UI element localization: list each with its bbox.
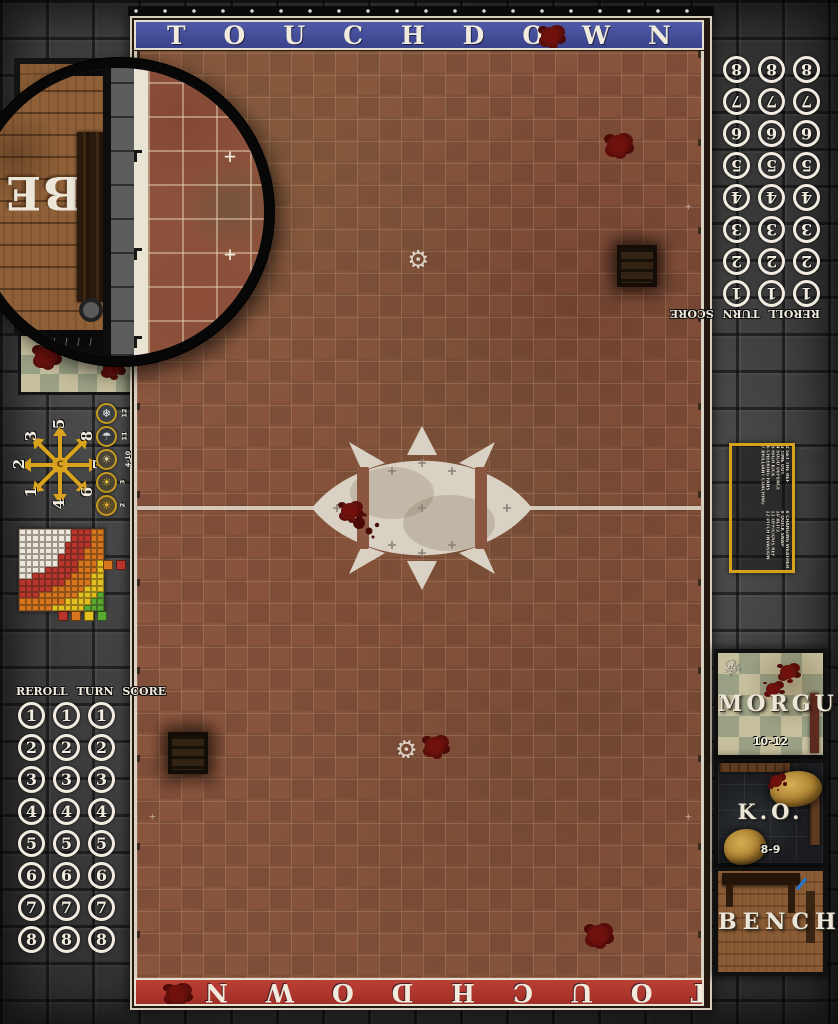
track-number-cell: 6 bbox=[723, 120, 750, 147]
track-number-cell: 5 bbox=[18, 830, 45, 857]
track-number-cell: 5 bbox=[88, 830, 115, 857]
rain-icon: ☂ bbox=[96, 426, 117, 447]
wood-plank bbox=[720, 763, 790, 772]
turn-track-header: REROLL TURN SCORE bbox=[16, 685, 126, 698]
track-row: 333 bbox=[716, 216, 820, 243]
ko-dugout: K.O. 8-9 bbox=[714, 759, 827, 867]
track-number-cell: 6 bbox=[53, 862, 80, 889]
kickoff-row: 12 PITCH INVASION bbox=[765, 511, 770, 571]
track-number-cell: 3 bbox=[723, 216, 750, 243]
track-number-cell: 4 bbox=[53, 798, 80, 825]
blood-splatter bbox=[587, 925, 609, 945]
track-row: 222 bbox=[716, 248, 820, 275]
endzone-top: TOUCHDOWN bbox=[134, 20, 704, 50]
turn-track-right: REROLL TURN SCORE 1112223334445556667778… bbox=[716, 56, 820, 320]
track-row: 222 bbox=[18, 734, 115, 761]
track-number-cell: 6 bbox=[18, 862, 45, 889]
pitch-cross-mark: + bbox=[149, 811, 156, 822]
kickoff-row: 2 GET THE REF bbox=[784, 446, 789, 506]
legend-swatch bbox=[97, 611, 107, 621]
endzone-bottom: TOUCHDOWN bbox=[134, 978, 704, 1006]
track-number-cell: 7 bbox=[758, 88, 785, 115]
kickoff-row: 8 CHANGING WEATHER bbox=[784, 511, 789, 571]
fair-weather-icon: ☀ bbox=[96, 449, 117, 470]
weather-row: ☀3 bbox=[96, 472, 136, 492]
magnified-bench-letters: BE bbox=[4, 166, 82, 220]
blood-splatter bbox=[425, 737, 445, 755]
track-number-cell: 5 bbox=[793, 152, 820, 179]
track-row: 777 bbox=[716, 88, 820, 115]
trapdoor-icon bbox=[617, 245, 657, 287]
track-row: 666 bbox=[716, 120, 820, 147]
touchdown-text-top: TOUCHDOWN bbox=[167, 23, 704, 48]
bench-leg bbox=[726, 885, 733, 907]
track-row: 444 bbox=[18, 798, 115, 825]
blood-splatter bbox=[770, 775, 782, 787]
ko-label: K.O. bbox=[718, 799, 823, 824]
kickoff-spot-icon: ⚙ bbox=[391, 734, 421, 766]
kickoff-row: 11 OFFICIOUS REF bbox=[770, 511, 775, 571]
sideline-tick bbox=[134, 336, 142, 348]
magnified-frame bbox=[0, 68, 103, 76]
track-number-cell: 3 bbox=[88, 766, 115, 793]
kickoff-row: 6 CHEERING FANS bbox=[765, 446, 770, 506]
track-number-cell: 5 bbox=[723, 152, 750, 179]
track-number-cell: 1 bbox=[793, 280, 820, 307]
track-number-cell: 1 bbox=[723, 280, 750, 307]
scatter-number: 1 bbox=[22, 487, 40, 497]
track-number-cell: 4 bbox=[758, 184, 785, 211]
track-number-cell: 4 bbox=[88, 798, 115, 825]
track-number-cell: 1 bbox=[18, 702, 45, 729]
weather-roll-label: 12 bbox=[121, 408, 129, 417]
track-row: 111 bbox=[716, 280, 820, 307]
weather-roll-label: 3 bbox=[118, 480, 126, 485]
track-number-cell: 5 bbox=[758, 152, 785, 179]
track-number-cell: 4 bbox=[723, 184, 750, 211]
legend-swatch bbox=[116, 560, 126, 570]
skeleton-icon: ☠ bbox=[717, 652, 744, 682]
scatter-hub-icon: C bbox=[52, 457, 68, 473]
track-number-cell: 4 bbox=[793, 184, 820, 211]
track-number-cell: 1 bbox=[758, 280, 785, 307]
track-number-cell: 1 bbox=[88, 702, 115, 729]
weather-row: ☀2 bbox=[96, 495, 136, 515]
game-mat: TOUCHDOWN + + + + bbox=[0, 0, 838, 1024]
blood-splatter bbox=[780, 665, 796, 679]
track-number-cell: 8 bbox=[18, 926, 45, 953]
kickoff-row: 5 HIGH KICK bbox=[770, 446, 775, 506]
legend-swatch bbox=[84, 611, 94, 621]
turn-track-header: REROLL TURN SCORE bbox=[710, 307, 820, 320]
bench-furniture bbox=[722, 873, 800, 885]
track-number-cell: 4 bbox=[18, 798, 45, 825]
turn-track-grid: 111222333444555666777888 bbox=[18, 702, 115, 953]
pitch-cross-mark: + bbox=[224, 244, 236, 264]
magnified-stone-border bbox=[111, 68, 134, 356]
sideline-ticks-right bbox=[698, 51, 701, 978]
range-ruler-legend bbox=[103, 560, 126, 570]
track-number-cell: 3 bbox=[53, 766, 80, 793]
scatter-number: 8 bbox=[79, 430, 97, 440]
pitch-cross-mark: + bbox=[685, 201, 692, 212]
track-row: 666 bbox=[18, 862, 115, 889]
blood-splatter bbox=[341, 503, 359, 519]
turn-track-grid: 111222333444555666777888 bbox=[716, 56, 820, 307]
range-ruler-grid bbox=[18, 528, 105, 612]
track-row: 333 bbox=[18, 766, 115, 793]
bench-dugout: BENCH bbox=[714, 867, 827, 976]
track-row: 555 bbox=[716, 152, 820, 179]
track-number-cell: 2 bbox=[88, 734, 115, 761]
weather-row: ❄12 bbox=[96, 403, 136, 423]
track-number-cell: 7 bbox=[88, 894, 115, 921]
kickoff-row: 4 SOLID DEFENCE bbox=[774, 446, 779, 506]
kickoff-row: 7 BRILLIANT COACHING bbox=[760, 446, 765, 506]
blood-splatter bbox=[166, 985, 188, 1003]
blood-splatter bbox=[607, 135, 629, 155]
track-row: 888 bbox=[716, 56, 820, 83]
track-number-cell: 8 bbox=[793, 56, 820, 83]
track-row: 777 bbox=[18, 894, 115, 921]
sideline-tick bbox=[134, 150, 142, 162]
track-number-cell: 6 bbox=[793, 120, 820, 147]
track-number-cell: 1 bbox=[53, 702, 80, 729]
track-number-cell: 8 bbox=[758, 56, 785, 83]
track-number-cell: 6 bbox=[88, 862, 115, 889]
blood-splatter bbox=[541, 27, 561, 45]
morgue-roll-range: 10-12 bbox=[718, 735, 823, 748]
scatter-number: 4 bbox=[50, 499, 68, 509]
track-number-cell: 3 bbox=[18, 766, 45, 793]
kickoff-table: 2 GET THE REF3 TIME OUT4 SOLID DEFENCE5 … bbox=[729, 443, 795, 573]
track-number-cell: 6 bbox=[758, 120, 785, 147]
pitch-cross-mark: + bbox=[224, 146, 236, 166]
morgue-dugout: ☠ MORGUE 10-12 bbox=[714, 649, 827, 759]
legend-swatch bbox=[103, 560, 113, 570]
scatter-number: 5 bbox=[50, 419, 68, 429]
track-row: 444 bbox=[716, 184, 820, 211]
track-number-cell: 8 bbox=[88, 926, 115, 953]
magnified-bench-back bbox=[77, 132, 103, 302]
weather-row: ☀4-10 bbox=[96, 449, 136, 469]
track-number-cell: 8 bbox=[723, 56, 750, 83]
sideline-tick bbox=[134, 248, 142, 260]
track-row: 111 bbox=[18, 702, 115, 729]
kickoff-table-rows: 2 GET THE REF3 TIME OUT4 SOLID DEFENCE5 … bbox=[735, 446, 789, 571]
track-number-cell: 7 bbox=[53, 894, 80, 921]
track-number-cell: 2 bbox=[53, 734, 80, 761]
track-number-cell: 3 bbox=[793, 216, 820, 243]
touchdown-text-bottom: TOUCHDOWN bbox=[167, 980, 704, 1005]
magnified-pitch-tiles: + + bbox=[148, 68, 264, 356]
scatter-number: 3 bbox=[22, 430, 40, 440]
ko-roll-range: 8-9 bbox=[718, 843, 823, 856]
weather-roll-label: 4-10 bbox=[124, 451, 132, 467]
track-number-cell: 7 bbox=[723, 88, 750, 115]
track-row: 555 bbox=[18, 830, 115, 857]
kickoff-spot-icon: ⚙ bbox=[407, 247, 429, 272]
track-row: 888 bbox=[18, 926, 115, 953]
track-number-cell: 3 bbox=[758, 216, 785, 243]
morgue-label: MORGUE bbox=[718, 691, 823, 717]
track-number-cell: 5 bbox=[53, 830, 80, 857]
track-number-cell: 7 bbox=[18, 894, 45, 921]
track-number-cell: 2 bbox=[723, 248, 750, 275]
scatter-number: 2 bbox=[10, 459, 28, 469]
blizzard-icon: ❄ bbox=[96, 403, 117, 424]
magnified-frame bbox=[103, 68, 111, 356]
trapdoor-icon bbox=[168, 732, 208, 774]
scatter-number: 6 bbox=[79, 487, 97, 497]
bench-label: BENCH bbox=[718, 909, 823, 935]
weather-row: ☂11 bbox=[96, 426, 136, 446]
track-number-cell: 7 bbox=[793, 88, 820, 115]
range-ruler-legend bbox=[58, 611, 107, 621]
pitch-cross-mark: + bbox=[685, 811, 692, 822]
scorching-sun-icon: ☀ bbox=[96, 495, 117, 516]
magnifier-inset: BE + + bbox=[0, 58, 274, 366]
track-number-cell: 8 bbox=[53, 926, 80, 953]
legend-swatch bbox=[58, 611, 68, 621]
track-number-cell: 2 bbox=[758, 248, 785, 275]
magnified-chalk-marks bbox=[36, 338, 100, 346]
ruler-cell bbox=[97, 605, 104, 611]
weather-roll-label: 2 bbox=[118, 503, 126, 508]
sunny-icon: ☀ bbox=[96, 472, 117, 493]
track-number-cell: 2 bbox=[18, 734, 45, 761]
track-number-cell: 2 bbox=[793, 248, 820, 275]
magnified-sideline bbox=[134, 68, 148, 356]
weather-roll-label: 11 bbox=[121, 431, 129, 440]
weather-table: ❄12☂11☀4-10☀3☀2 bbox=[96, 403, 136, 515]
magnified-stool bbox=[79, 298, 103, 322]
legend-swatch bbox=[71, 611, 81, 621]
